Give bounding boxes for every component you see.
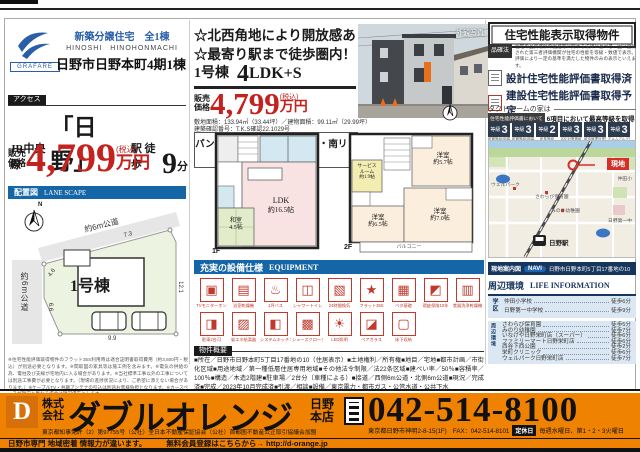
office-address: 東京都日野市神明2-8-15(1F) FAX：042-514-8101 (368, 426, 509, 435)
center-price-suffix: (税込) 万円 (280, 94, 308, 118)
environment-box: 周辺環境 さわらび保育園徒歩5分 みのり幼稚園徒歩7分 いなげや日野栄町店（スー… (488, 321, 636, 364)
grafare-logo-text: GRAFARE (10, 62, 60, 72)
tagline-strip: 日野市専門 地域密着 情報力が違います。 無料会員登録はこちらから→ http:… (0, 438, 640, 448)
plan-type: LDK+S (249, 65, 302, 84)
station-label: 日野駅 (549, 237, 569, 247)
center-price-unit: 万円 (280, 101, 308, 116)
dim-right: 12.1 (177, 281, 183, 293)
unit-plan-line: 1号棟 4 LDK+S (194, 62, 302, 84)
center-price-label: 販売 価格 (194, 95, 210, 118)
bathroom-dryer-icon: ▤ (232, 278, 256, 302)
equipment-header: 充実の設備仕様 EQUIPMENT (194, 260, 484, 274)
equipment-item: ★フラット35S (356, 278, 387, 309)
floorplan-1f-drawing (196, 126, 330, 258)
warranty-icon: ◩ (424, 278, 448, 302)
photo-caption: 外観写真 (456, 28, 484, 38)
exterior-photo: 外観写真 (358, 24, 488, 118)
equipment-item: ◩瑕疵保険10年 (420, 278, 451, 309)
equipment-item: ▩シューズクローク (292, 312, 323, 343)
lot-label: 1号棟 (70, 272, 110, 296)
equipment-item: ▣TVモニターホン (196, 278, 227, 309)
parking-icon: ◨ (200, 312, 224, 336)
landmark-label: 仲田小 (618, 175, 632, 182)
service-room-label: サービス ルーム 約1.9帖 (351, 164, 383, 181)
environment-row: ウェルパーク日野栄町店徒歩7分 (499, 357, 634, 363)
equipment-item: ▤浴室乾燥機 (228, 278, 259, 309)
law-badge: 品確法 (488, 44, 512, 58)
equipment-row-2: ◨駐車2台可 ▨省エネ給湯器 ◧システムキッチン ▩シューズクローク ☀LED照… (196, 312, 419, 343)
equipment-item: ▥食器洗浄乾燥機 (452, 278, 483, 309)
top-rule (0, 8, 640, 10)
takt-rule (554, 109, 636, 110)
equipment-item: ▨省エネ給湯器 (228, 312, 259, 343)
equipment-item: ▧24時間換気 (324, 278, 355, 309)
design-eval-text: 設計住宅性能評価書取得済 (506, 71, 632, 86)
floorplan-2f: 洋室 約5.7帖 サービス ルーム 約1.9帖 洋室 約6.5帖 洋室 約7.0… (334, 126, 484, 258)
plan-number: 4 (237, 64, 249, 84)
license-line: 東京都知事免許（2）第97755号（公社）全日本不動産保証協会（公社）首都圏不動… (42, 427, 316, 436)
environment-box-label: 周辺環境 (490, 323, 497, 362)
foundation-icon: ▦ (392, 278, 416, 302)
corner-mark (0, 0, 38, 4)
price-value: 4,799 (26, 140, 116, 176)
life-header-jp: 周辺環境 (488, 279, 524, 292)
pair-glass-icon: ◪ (360, 312, 384, 336)
floor-2f-label: 2F (344, 244, 352, 251)
flat35s-icon: ★ (360, 278, 384, 302)
landmark-label: さわらび保育園 (535, 193, 569, 200)
landmark-label: ウェルパーク (491, 181, 520, 188)
address-line: 東京都日野市神明2-8-15(1F) FAX：042-514-8101 定休日 … (368, 425, 624, 436)
dishwasher-icon: ▥ (456, 278, 480, 302)
holiday-text: 毎週水曜日、第1・2・3火曜日 (539, 426, 624, 435)
equipment-item: ◨駐車2台可 (196, 312, 227, 343)
phone-number: 042-514-8100 (368, 390, 578, 430)
grade-badge: 等級3ホルムアルデヒド対策 (608, 122, 630, 142)
room-b-label: 洋室 約6.5帖 (356, 214, 400, 229)
left-price: 販売 価格 4,799 (税込) 万円 (8, 140, 188, 176)
unit-label: 1号棟 (194, 62, 237, 84)
holiday-badge: 定休日 (512, 425, 536, 436)
bath-icon: ♨ (264, 278, 288, 302)
equipment-row-1: ▣TVモニターホン ▤浴室乾燥機 ♨1坪バス ◫シャワートイレ ▧24時間換気 … (196, 278, 483, 309)
price-unit: 万円 (116, 154, 150, 172)
law-note: 住宅の品質確保の促進等に関する法律に基づき、国に登録された第三者評価機関が住宅の… (515, 44, 636, 69)
equipment-header-jp: 充実の設備仕様 (200, 261, 263, 274)
system-kitchen-icon: ◧ (264, 312, 288, 336)
compass-n-label: N (38, 202, 42, 208)
equipment-item: ♨1坪バス (260, 278, 291, 309)
company-prefix: 株式 会社 (42, 399, 64, 422)
grade-badge: 等級3劣化対策等級 (560, 122, 582, 142)
road-left-label: 約6m公道 (19, 272, 30, 312)
footer-band: D 株式 会社 ダブルオレンジ 日野 本店 042-514-8100 東京都知事… (0, 393, 640, 438)
bottom-bar (0, 448, 640, 452)
ldk-label: LDK 約16.5帖 (248, 196, 314, 214)
landmark-label: みのり幼稚園 (551, 207, 580, 214)
law-row: 品確法 住宅の品質確保の促進等に関する法律に基づき、国に登録された第三者評価機関… (488, 44, 636, 69)
floor-1f-label: 1F (212, 248, 220, 255)
washitsu-label: 和室 4.5帖 (218, 218, 254, 232)
balcony-label: バルコニー (334, 243, 484, 250)
eval-row-1: 設計住宅性能評価書取得済 (488, 70, 632, 86)
sales-catch: 新築分譲住宅 全1棟 (58, 28, 186, 43)
price-label: 販売 価格 (8, 149, 26, 176)
center-price-value: 4,799 (210, 90, 280, 118)
office-building-icon (344, 397, 364, 425)
center-price: 販売 価格 4,799 (税込) 万円 (194, 90, 308, 118)
area-map: 現地 日野駅 ウェルパーク さわらび保育園 みのり幼稚園 仲田小 日野第一中 (488, 140, 636, 258)
room-c-label: 洋室 約7.0帖 (412, 208, 468, 223)
exterior-photo-art (358, 24, 488, 118)
branch-name: 日野 本店 (310, 398, 334, 423)
navi-label: 現地案内図 (491, 264, 521, 273)
site-plan: N 約6m公道 約6m公道 7.3 4.6 6.6 9.9 12.1 1号棟 (8, 202, 186, 350)
catch-line-1: ☆北西角地により開放感あり！ (194, 24, 383, 44)
school-box-label: 学区 (490, 298, 499, 316)
catch-line-2: ☆最寄り駅まで徒歩圏内！ (194, 43, 356, 63)
tv-monitor-phone-icon: ▣ (200, 278, 224, 302)
siteplan-header: 配置図 LANE SCAPE (8, 186, 186, 199)
dim-left: 6.6 (47, 303, 53, 311)
school-row: 仲田小学校徒歩6分 (501, 300, 634, 306)
navi-badge: NAVI (524, 266, 546, 272)
shower-toilet-icon: ◫ (296, 278, 320, 302)
grade-badges: 等級3耐震等級(倒壊等防止) 等級3耐震等級(損傷防止) 等級2耐風等級 等級3… (488, 122, 632, 142)
grade-badge: 等級3耐震等級(損傷防止) (512, 122, 534, 142)
access-label: アクセス (8, 95, 46, 105)
equipment-item: ◪ペアガラス (356, 312, 387, 343)
price-suffix: (税込) 万円 (116, 146, 150, 176)
dim-bottom: 9.9 (108, 336, 116, 342)
navi-bar: 現地案内図 NAVI 日野市日野本町5丁目17番地の10 (488, 262, 636, 275)
school-row: 日野第一中学校徒歩9分 (501, 309, 634, 315)
equipment-item: ◫シャワートイレ (292, 278, 323, 309)
flyer-page: GRAFARE 新築分譲住宅 全1棟 HINOSHI HINOHONMACHI … (0, 0, 640, 452)
grade-badge: 等級3維持管理対策等級 (584, 122, 606, 142)
grafare-logo-icon (12, 28, 56, 64)
navi-address: 日野市日野本町5丁目17番地の10 (549, 265, 630, 273)
property-title: 日野市日野本町4期1棟 (54, 54, 188, 73)
outline-text: ■所在／日野市日野本町5丁目17番地の10（住居表示）■土地権利／所有権■地目／… (194, 357, 484, 393)
grade-badge: 等級2耐風等級 (536, 122, 558, 142)
room-a-label: 洋室 約5.7帖 (416, 152, 470, 167)
ventilation-icon: ▧ (328, 278, 352, 302)
school-box: 学区 仲田小学校徒歩6分 日野第一中学校徒歩9分 (488, 296, 636, 318)
equipment-item: ▦ベタ基礎 (388, 278, 419, 309)
col-divider-1 (189, 20, 190, 364)
led-light-icon: ☀ (328, 312, 352, 336)
life-header: 周辺環境 LIFE INFORMATION (488, 279, 636, 296)
outline-rule (232, 351, 484, 352)
equipment-item: ▢床下収納 (388, 312, 419, 343)
company-logo: D (6, 396, 38, 428)
siteplan-header-jp: 配置図 (14, 187, 38, 198)
photo-compass-icon (440, 102, 460, 122)
equipment-header-en: EQUIPMENT (269, 263, 318, 272)
grade-badge: 等級3耐震等級(倒壊等防止) (488, 122, 510, 142)
outline-label: 物件概要 (194, 346, 232, 356)
floorplan-2f-drawing (334, 126, 484, 258)
shoes-closet-icon: ▩ (296, 312, 320, 336)
water-heater-icon: ▨ (232, 312, 256, 336)
equipment-item: ◧システムキッチン (260, 312, 291, 343)
equipment-item: ☀LED照明 (324, 312, 355, 343)
siteplan-header-en: LANE SCAPE (44, 189, 86, 197)
life-header-en: LIFE INFORMATION (530, 281, 610, 290)
design-eval-doc-icon (488, 70, 502, 86)
access-rule (8, 105, 186, 106)
romaji-subtitle: HINOSHI HINOHONMACHI (58, 43, 186, 53)
genchi-flag: 現地 (607, 158, 629, 170)
floorplan-1f: LDK 約16.5帖 和室 4.5帖 1F (196, 126, 330, 258)
floor-storage-icon: ▢ (392, 312, 416, 336)
landmark-label: 日野第一中 (608, 217, 632, 224)
